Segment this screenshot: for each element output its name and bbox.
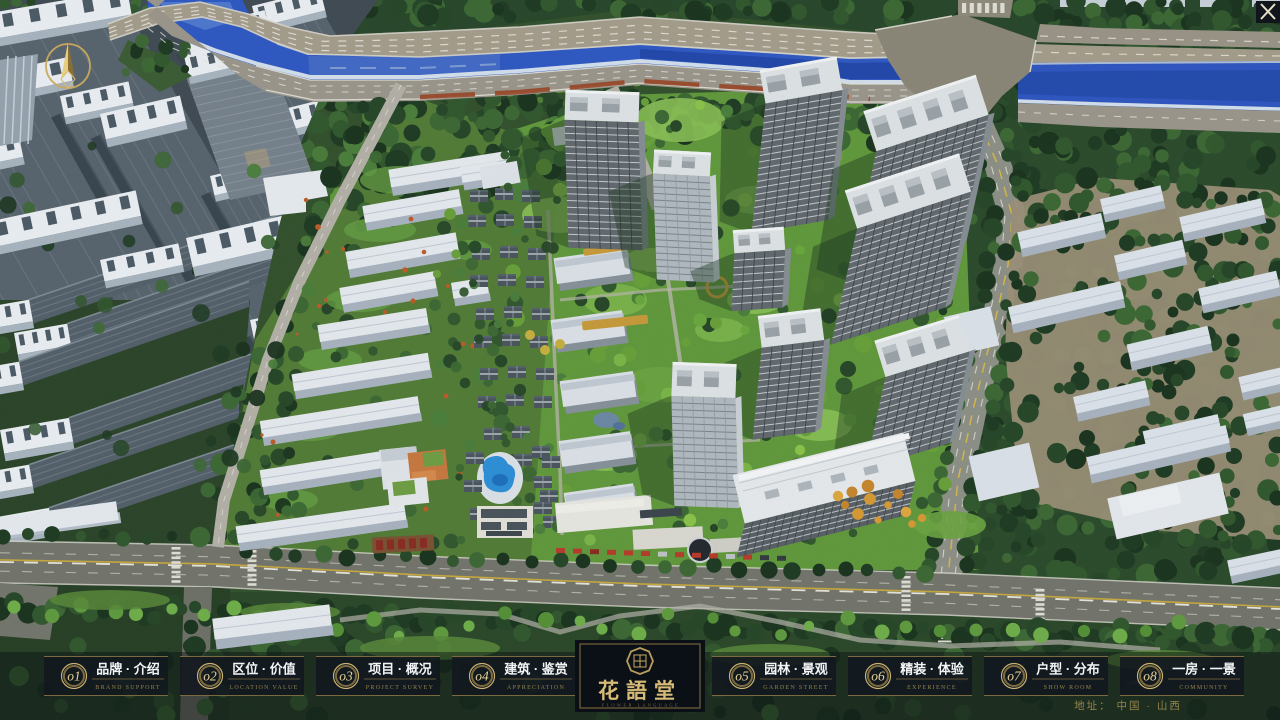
svg-text:o5: o5 xyxy=(735,669,749,684)
svg-text:花語堂: 花語堂 xyxy=(598,679,682,703)
svg-text:地址： 中国 · 山西: 地址： 中国 · 山西 xyxy=(1074,699,1182,712)
svg-text:GARDEN STREET: GARDEN STREET xyxy=(763,685,828,691)
svg-text:一房 · 一景: 一房 · 一景 xyxy=(1172,662,1236,677)
svg-text:o2: o2 xyxy=(203,669,217,684)
svg-text:o6: o6 xyxy=(871,669,885,684)
svg-text:园林 · 景观: 园林 · 景观 xyxy=(764,662,828,677)
svg-text:BRAND SUPPORT: BRAND SUPPORT xyxy=(95,685,160,691)
svg-text:精装 · 体验: 精装 · 体验 xyxy=(900,662,965,677)
svg-text:PROJECT SURVEY: PROJECT SURVEY xyxy=(366,685,434,691)
svg-text:建筑 · 鉴赏: 建筑 · 鉴赏 xyxy=(504,662,568,677)
svg-text:o8: o8 xyxy=(1143,669,1157,684)
svg-text:品牌 · 介绍: 品牌 · 介绍 xyxy=(96,662,160,677)
svg-text:o4: o4 xyxy=(475,669,489,684)
svg-text:SHOW ROOM: SHOW ROOM xyxy=(1044,685,1093,691)
svg-text:APPRECIATION: APPRECIATION xyxy=(507,685,565,691)
svg-text:o1: o1 xyxy=(67,669,81,684)
svg-text:项目 · 概况: 项目 · 概况 xyxy=(368,662,432,677)
svg-text:F L O W E R · L A N G U A G E: F L O W E R · L A N G U A G E xyxy=(602,703,679,708)
svg-text:户型 · 分布: 户型 · 分布 xyxy=(1036,662,1100,677)
svg-text:EXPERIENCE: EXPERIENCE xyxy=(907,685,957,691)
svg-text:区位 · 价值: 区位 · 价值 xyxy=(232,662,296,677)
svg-text:o7: o7 xyxy=(1007,669,1022,684)
svg-text:o3: o3 xyxy=(339,669,353,684)
svg-text:COMMUNITY: COMMUNITY xyxy=(1179,685,1228,691)
svg-text:LOCATION VALUE: LOCATION VALUE xyxy=(229,685,298,691)
